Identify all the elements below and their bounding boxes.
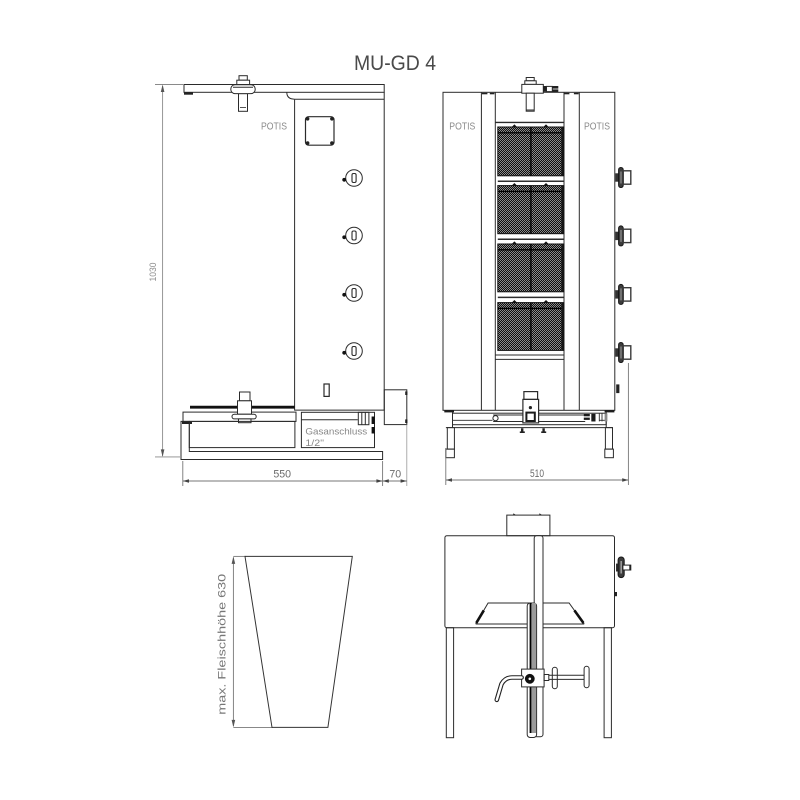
svg-text:70: 70 — [389, 469, 401, 481]
svg-text:POTIS: POTIS — [584, 122, 610, 133]
svg-text:510: 510 — [530, 468, 544, 480]
svg-text:MU-GD 4: MU-GD 4 — [354, 52, 436, 75]
svg-text:Gasanschluss: Gasanschluss — [305, 427, 367, 437]
svg-text:POTIS: POTIS — [449, 122, 475, 133]
svg-text:1030: 1030 — [147, 263, 158, 282]
svg-text:POTIS: POTIS — [261, 122, 287, 133]
svg-text:max. Fleischhöhe 630: max. Fleischhöhe 630 — [217, 574, 229, 715]
svg-text:550: 550 — [273, 469, 291, 481]
svg-text:1/2": 1/2" — [305, 438, 324, 448]
